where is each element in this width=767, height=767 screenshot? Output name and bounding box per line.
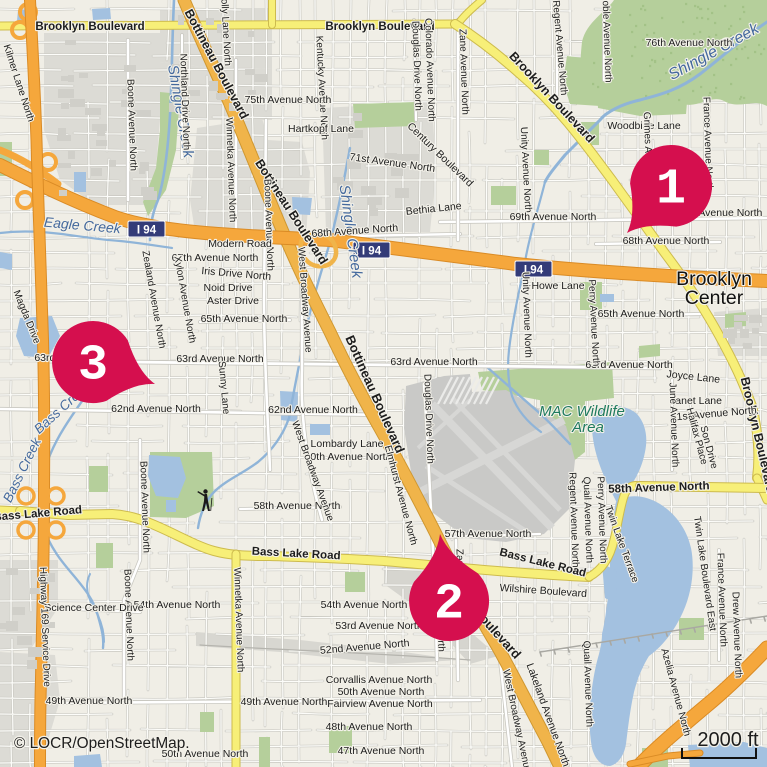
svg-text:57th Avenue North: 57th Avenue North (445, 528, 532, 540)
svg-text:© LOCR/OpenStreetMap.: © LOCR/OpenStreetMap. (14, 735, 190, 752)
svg-text:3: 3 (78, 338, 108, 395)
svg-text:Area: Area (571, 419, 604, 436)
svg-text:Corvallis Avenue North: Corvallis Avenue North (326, 674, 433, 686)
svg-text:Aster Drive: Aster Drive (207, 295, 259, 307)
svg-text:48th Avenue North: 48th Avenue North (326, 721, 413, 733)
svg-text:I 94: I 94 (137, 225, 157, 237)
svg-text:Modern Road: Modern Road (208, 238, 272, 250)
svg-text:62nd Avenue North: 62nd Avenue North (268, 404, 358, 416)
svg-text:47th Avenue North: 47th Avenue North (338, 745, 425, 757)
svg-text:MAC Wildlife: MAC Wildlife (539, 403, 625, 420)
svg-text:Hartkopf Lane: Hartkopf Lane (288, 123, 354, 135)
svg-text:Center: Center (685, 287, 744, 309)
svg-text:Lombardy Lane: Lombardy Lane (311, 438, 384, 450)
svg-text:I 94: I 94 (362, 246, 382, 258)
svg-text:49th Avenue North: 49th Avenue North (241, 696, 328, 708)
svg-text:75th Avenue North: 75th Avenue North (245, 94, 332, 106)
svg-text:62nd Avenue North: 62nd Avenue North (111, 403, 201, 415)
svg-text:Noid Drive: Noid Drive (203, 282, 252, 294)
svg-text:65th Avenue North: 65th Avenue North (201, 313, 288, 325)
svg-text:49th Avenue North: 49th Avenue North (46, 695, 133, 707)
svg-text:54th Avenue North: 54th Avenue North (134, 599, 221, 611)
svg-text:63rd Avenue North: 63rd Avenue North (390, 356, 478, 368)
svg-text:68th Avenue North: 68th Avenue North (623, 235, 710, 247)
svg-text:50th Avenue North: 50th Avenue North (338, 686, 425, 698)
svg-text:1: 1 (656, 162, 686, 219)
svg-text:Fairview Avenue North: Fairview Avenue North (327, 698, 433, 710)
svg-text:Howe Lane: Howe Lane (531, 280, 584, 292)
svg-text:69th Avenue North: 69th Avenue North (510, 211, 597, 223)
svg-text:76th Avenue North: 76th Avenue North (646, 37, 733, 49)
svg-text:Science Center Drive: Science Center Drive (44, 602, 143, 614)
svg-text:54th Avenue North: 54th Avenue North (321, 599, 408, 611)
svg-text:Brooklyn Boulevard: Brooklyn Boulevard (35, 21, 144, 33)
svg-text:60th Avenue North: 60th Avenue North (305, 451, 392, 463)
svg-text:67th Avenue North: 67th Avenue North (172, 252, 259, 264)
svg-text:65th Avenue North: 65th Avenue North (598, 308, 685, 320)
svg-text:2000 ft: 2000 ft (697, 729, 759, 751)
svg-text:2: 2 (434, 577, 464, 634)
svg-text:53rd Avenue North: 53rd Avenue North (335, 620, 423, 632)
